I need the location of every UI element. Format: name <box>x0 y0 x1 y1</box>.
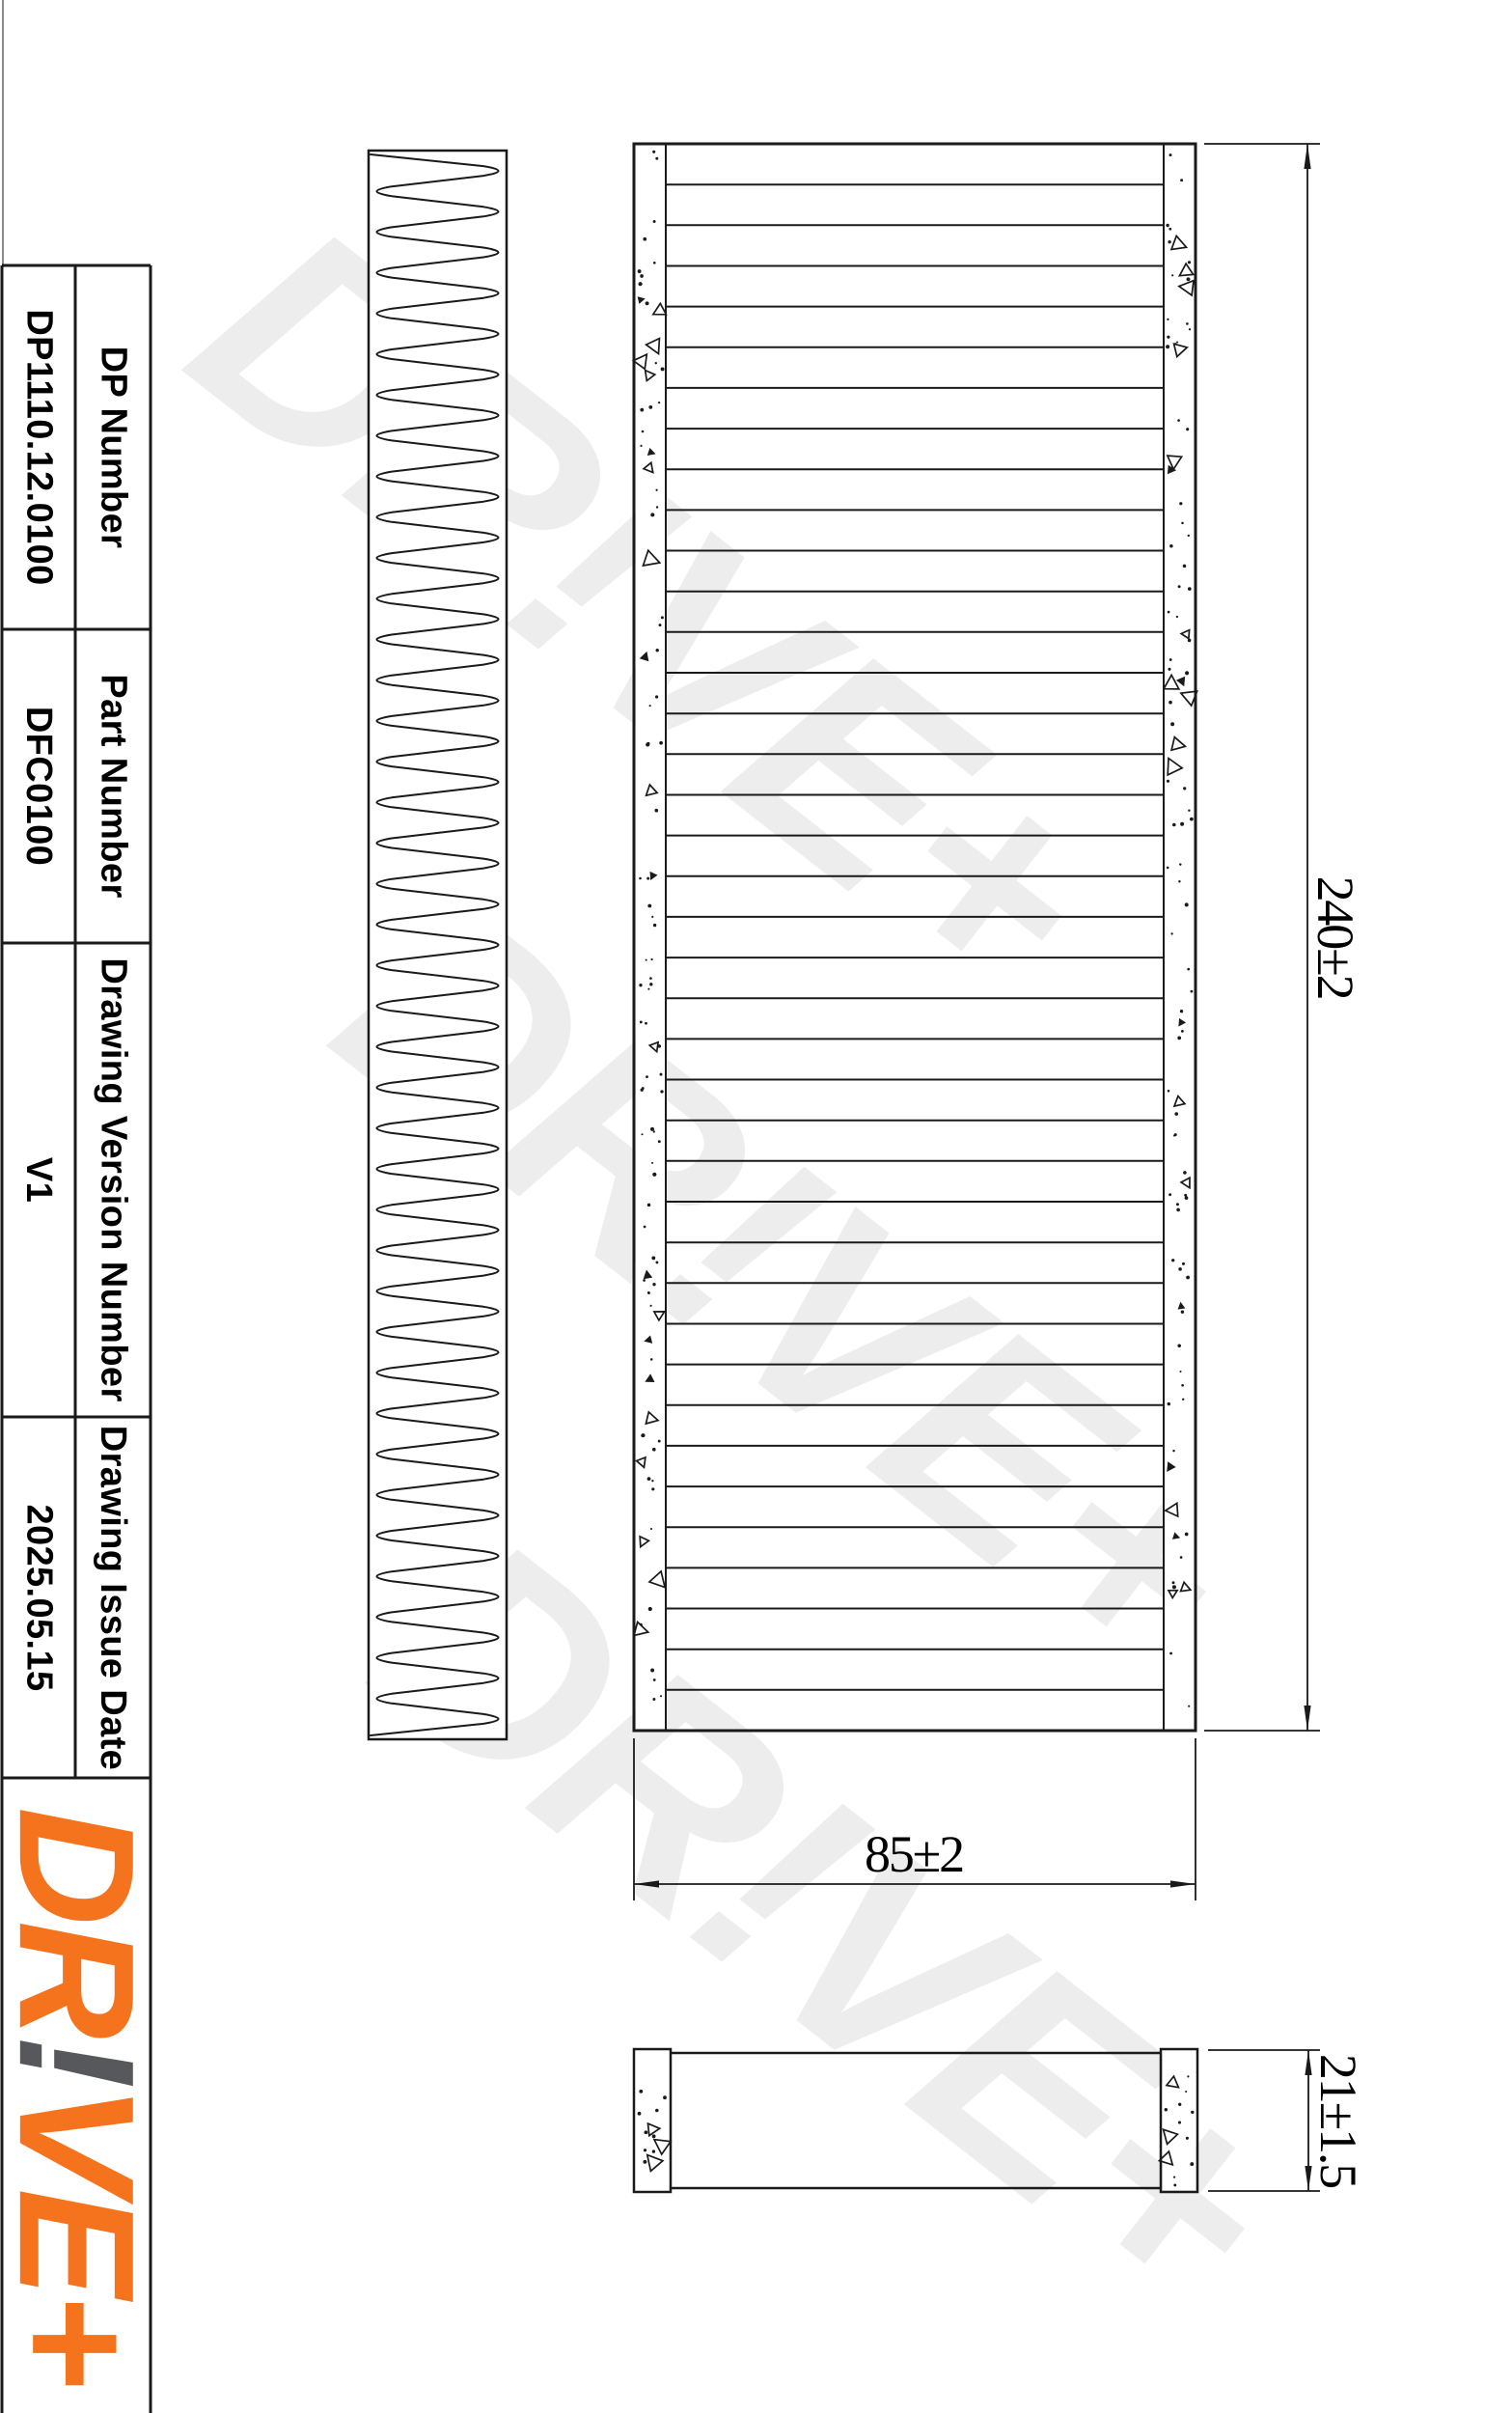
pleated-strip-side-view <box>369 151 507 1739</box>
dp-number-value: DP1110.12.0100 <box>2 265 75 629</box>
logo-text-dr: DR <box>0 1807 168 2034</box>
filter-bottom-view <box>634 2049 1197 2192</box>
engineering-drawing-page: DR!VE+ DR!VE+ DR!VE+ DP1110.12.0100 DP N… <box>0 0 1512 2413</box>
dimension-height-label: 240±2 <box>1306 876 1365 999</box>
dp-number-label: DP Number <box>75 265 151 629</box>
technical-drawing <box>0 0 1512 2413</box>
issue-date-value: 2025.05.15 <box>2 1417 75 1778</box>
drawing-version-value: V1 <box>2 943 75 1417</box>
logo-text-ve-plus: VE+ <box>0 2084 168 2384</box>
logo-exclamation: ! <box>0 2035 168 2085</box>
dimension-lines <box>634 144 1320 2191</box>
filter-front-view <box>633 144 1196 1731</box>
issue-date-label: Drawing Issue Date <box>75 1417 151 1778</box>
dimension-thickness-label: 21±1.5 <box>1308 2054 1368 2187</box>
drawing-version-label: Drawing Version Number <box>75 943 151 1417</box>
part-number-label: Part Number <box>75 629 151 943</box>
brand-logo: DR!VE+ <box>2 1778 151 2413</box>
dimension-width-label: 85±2 <box>865 1824 963 1884</box>
part-number-value: DFC0100 <box>2 629 75 943</box>
